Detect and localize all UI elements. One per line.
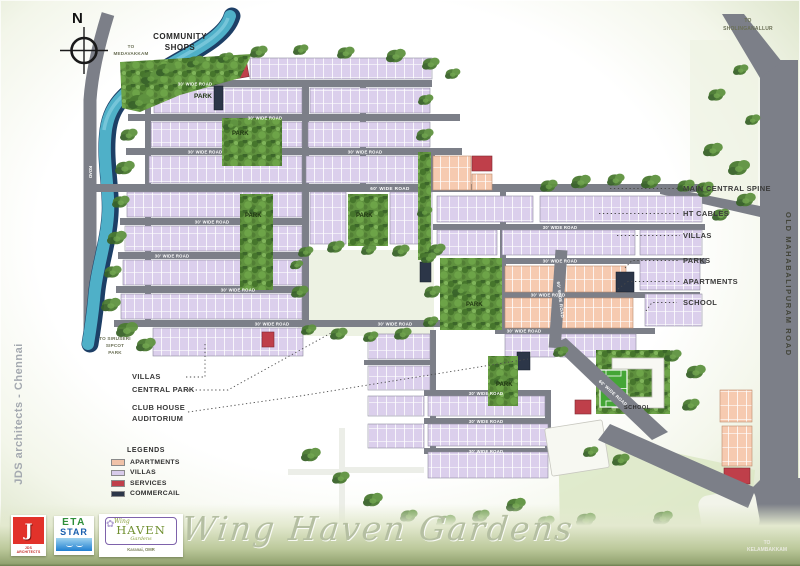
legend-row: SERVICES: [100, 478, 180, 489]
road-label: 30' WIDE ROAD: [378, 322, 413, 327]
park-label: PARK: [356, 213, 373, 219]
road-label: 30' WIDE ROAD: [195, 220, 230, 225]
road-label: 30' WIDE ROAD: [188, 150, 223, 155]
road-label: 30' WIDE ROAD: [543, 259, 578, 264]
school-label: SCHOOL: [624, 405, 651, 411]
architect-side-text: JDS architects - Chennai: [13, 334, 29, 494]
legend-row: APARTMENTS: [100, 457, 180, 468]
legend-header: LEGENDS: [127, 447, 180, 454]
to-sholinganallur-label: TO SHOLINGANALLUR: [702, 18, 794, 33]
gull-icon: [66, 543, 73, 547]
road-label: 30' WIDE ROAD: [255, 322, 290, 327]
road-label: 60' WIDE ROAD: [370, 186, 410, 191]
road-label: 30' WIDE ROAD: [507, 329, 542, 334]
haven-logo-box: ✿ Wing HAVEN Gardens: [105, 517, 177, 545]
legend-label: SERVICES: [130, 480, 167, 487]
road-label: 30' WIDE ROAD: [469, 391, 504, 396]
commercial-swatch: [111, 491, 125, 498]
callout-central-park: CENTRAL PARK: [132, 385, 195, 396]
callout-villas-left: VILLAS: [132, 372, 161, 383]
callout-main-central-spine: MAIN CENTRAL SPINE: [683, 184, 771, 195]
legend: LEGENDS APARTMENTS VILLAS SERVICES COMME…: [100, 447, 180, 499]
jds-monogram: J: [24, 521, 32, 541]
road-label: ROAD: [88, 166, 93, 178]
jds-logo-mark: J: [13, 517, 44, 544]
legend-row: VILLAS: [100, 468, 180, 479]
park-label: PARK: [466, 302, 483, 308]
callout-apartments: APARTMENTS: [683, 277, 738, 288]
haven-wing-script: Wing: [114, 518, 130, 525]
callout-school: SCHOOL: [683, 298, 717, 309]
haven-caption: Karanai, OMR: [101, 547, 181, 552]
apartments-swatch: [111, 459, 125, 466]
park-label: PARK: [194, 93, 212, 100]
to-medavakkam-label: TO MEDAVAKKAM: [108, 44, 154, 58]
road-label: 30' WIDE ROAD: [348, 150, 383, 155]
compass-north-label: N: [72, 10, 83, 27]
villas-swatch: [111, 470, 125, 477]
park-label: PARK: [245, 213, 262, 219]
to-siruseri-sipcot-park-label: TO SIRUSERI SIPCOT PARK: [90, 336, 140, 357]
services-swatch: [111, 480, 125, 487]
legend-label: VILLAS: [130, 469, 156, 476]
jds-architects-logo: J JDS ARCHITECTS: [11, 515, 46, 556]
road-label: 30' WIDE ROAD: [469, 419, 504, 424]
legend-label: COMMERCAIL: [130, 490, 180, 497]
gull-icon: [76, 543, 83, 547]
omr-road-label: OLD MAHABALIPURAM ROAD: [784, 212, 793, 357]
road-label: 30' WIDE ROAD: [248, 116, 283, 121]
site-plan-poster: N PARK PARK PARK PARK PARK PARK SCHOOL 3…: [0, 0, 800, 566]
project-title-script: Wing Haven Gardens: [180, 509, 576, 548]
road-label: 30' WIDE ROAD: [221, 288, 256, 293]
legend-label: APARTMENTS: [130, 459, 180, 466]
jds-caption: JDS ARCHITECTS: [13, 546, 44, 554]
callout-villas: VILLAS: [683, 231, 712, 242]
road-label: 30' WIDE ROAD: [543, 225, 578, 230]
haven-logo: ✿ Wing HAVEN Gardens Karanai, OMR: [99, 514, 183, 557]
to-kelambakkam-label: TO KELAMBAKKAM: [738, 540, 796, 554]
legend-row: COMMERCAIL: [100, 489, 180, 500]
callout-club-house-auditorium: CLUB HOUSE AUDITORIUM: [132, 403, 185, 424]
eta-star-logo: ETA STAR: [54, 516, 94, 555]
park-label: PARK: [496, 382, 513, 388]
haven-gardens-script: Gardens: [106, 537, 176, 542]
haven-name: HAVEN: [106, 525, 176, 537]
road-label: 30' WIDE ROAD: [469, 449, 504, 454]
callout-parks: PARKS: [683, 256, 710, 267]
road-label: 30' WIDE ROAD: [155, 254, 190, 259]
callout-ht-cables: HT CABLES: [683, 209, 729, 220]
road-label: 30' WIDE ROAD: [178, 82, 213, 87]
star-text: STAR: [56, 528, 92, 537]
eta-sea-graphic: [56, 538, 92, 551]
park-label: PARK: [232, 131, 249, 137]
